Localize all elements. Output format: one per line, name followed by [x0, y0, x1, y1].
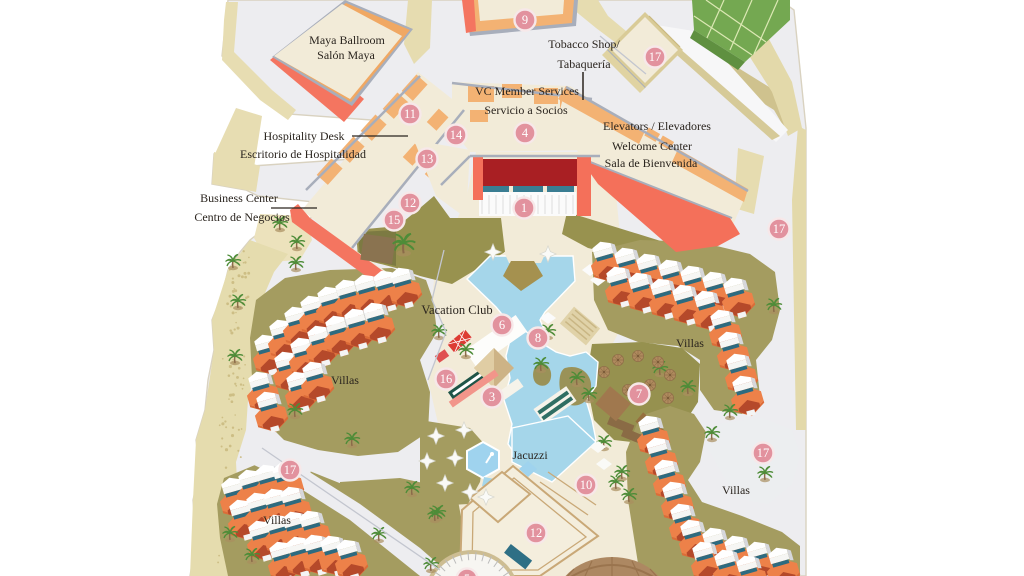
svg-text:12: 12	[530, 526, 543, 540]
svg-text:VC Member Services: VC Member Services	[475, 84, 579, 98]
svg-text:12: 12	[404, 196, 417, 210]
svg-text:Tabaquería: Tabaquería	[557, 57, 611, 71]
svg-text:5: 5	[464, 572, 470, 576]
svg-text:8: 8	[535, 331, 541, 345]
svg-text:15: 15	[388, 213, 401, 227]
svg-text:Centro de Negocios: Centro de Negocios	[194, 210, 290, 224]
svg-text:Villas: Villas	[676, 336, 704, 350]
svg-text:Jacuzzi: Jacuzzi	[512, 448, 548, 462]
svg-text:Tobacco Shop/: Tobacco Shop/	[548, 37, 620, 51]
svg-text:14: 14	[450, 128, 463, 142]
svg-text:17: 17	[649, 50, 662, 64]
svg-text:13: 13	[421, 152, 434, 166]
svg-text:10: 10	[580, 478, 593, 492]
svg-text:Salón Maya: Salón Maya	[317, 48, 375, 62]
svg-text:1: 1	[521, 201, 527, 215]
svg-text:Vacation Club: Vacation Club	[421, 303, 492, 317]
svg-text:4: 4	[522, 126, 529, 140]
svg-text:Welcome Center: Welcome Center	[612, 139, 692, 153]
svg-text:16: 16	[440, 372, 453, 386]
svg-text:9: 9	[522, 13, 528, 27]
svg-text:Business Center: Business Center	[200, 191, 278, 205]
svg-text:Hospitality Desk: Hospitality Desk	[264, 129, 345, 143]
svg-text:Sala de Bienvenida: Sala de Bienvenida	[605, 156, 698, 170]
svg-text:17: 17	[757, 446, 770, 460]
svg-text:6: 6	[499, 318, 505, 332]
svg-text:Villas: Villas	[331, 373, 359, 387]
svg-text:Escritorio de Hospitalidad: Escritorio de Hospitalidad	[240, 147, 366, 161]
svg-text:Servicio a Socios: Servicio a Socios	[484, 103, 568, 117]
svg-text:Villas: Villas	[263, 513, 291, 527]
svg-text:17: 17	[284, 463, 297, 477]
svg-text:Elevators / Elevadores: Elevators / Elevadores	[603, 119, 711, 133]
svg-text:11: 11	[404, 107, 416, 121]
svg-text:7: 7	[636, 387, 642, 401]
svg-text:3: 3	[489, 390, 495, 404]
svg-text:17: 17	[773, 222, 786, 236]
svg-text:Maya Ballroom: Maya Ballroom	[309, 33, 385, 47]
svg-text:Villas: Villas	[722, 483, 750, 497]
